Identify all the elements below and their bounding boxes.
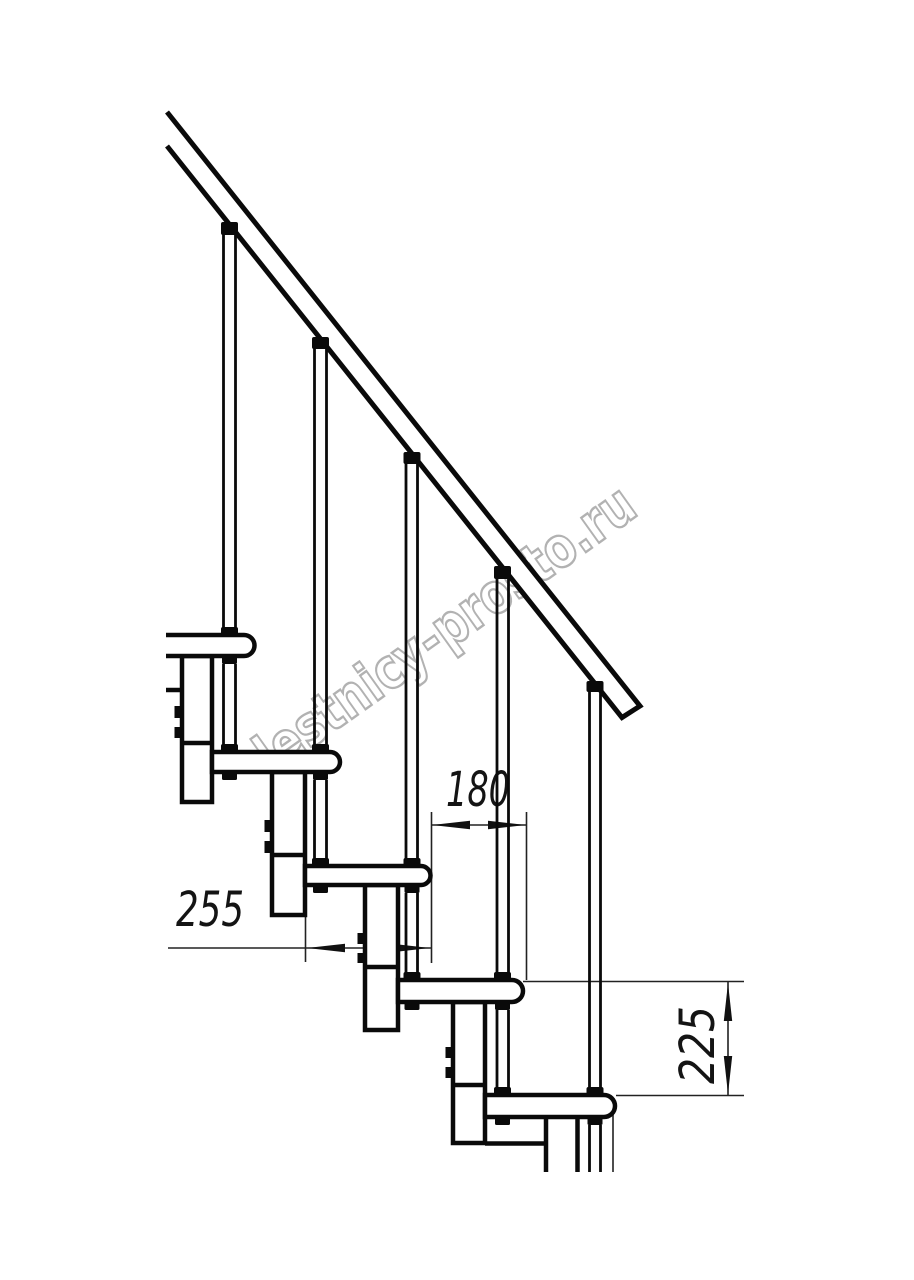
baluster-4 <box>497 577 509 1089</box>
clamp-tab <box>446 1067 454 1078</box>
arrowhead-left-icon <box>307 944 345 952</box>
baluster-2 <box>315 348 327 860</box>
tread-2 <box>212 752 340 772</box>
tread-cap <box>221 627 238 636</box>
under-tread-nut <box>588 1116 603 1125</box>
step-rise-label: 225 <box>670 1006 726 1084</box>
step-run-label: 180 <box>446 762 510 818</box>
tread-cap <box>494 1087 511 1096</box>
rail-cap <box>221 222 238 235</box>
under-tread-nut <box>405 884 420 893</box>
drawing-svg: lestnicy-prosto.ru 255 180 225 <box>0 0 914 1280</box>
rail-cap <box>494 566 511 579</box>
clamp-tab <box>358 933 366 944</box>
tread-cap <box>404 972 421 981</box>
spine-module <box>182 656 212 802</box>
staircase-technical-drawing: lestnicy-prosto.ru 255 180 225 <box>0 0 914 1280</box>
rail-cap <box>312 337 329 349</box>
clamp-tab <box>175 727 183 738</box>
rail-cap <box>587 681 604 692</box>
baluster-1 <box>224 234 236 746</box>
balusters <box>224 234 601 1172</box>
clamp-tab <box>265 841 273 853</box>
arrowhead-left-icon <box>432 821 470 829</box>
under-tread-nut <box>495 1001 510 1010</box>
tread-3 <box>305 866 431 885</box>
tread-cap <box>587 1087 604 1096</box>
spine-module <box>453 1002 485 1143</box>
tread-cap <box>221 744 238 753</box>
under-tread-nut <box>313 884 328 893</box>
tread-cap <box>312 858 329 867</box>
under-tread-nut <box>405 1001 420 1010</box>
baluster-3 <box>406 462 418 974</box>
tread-1 <box>166 635 255 656</box>
spine-module <box>365 885 398 1030</box>
under-tread-nut <box>313 771 328 780</box>
tread-4 <box>398 980 523 1002</box>
under-tread-nut <box>495 1116 510 1125</box>
tread-depth-label: 255 <box>176 882 244 938</box>
rail-cap <box>404 452 421 464</box>
clamp-tab <box>175 706 183 718</box>
tread-cap <box>494 972 511 981</box>
clamp-tab <box>265 820 273 832</box>
under-tread-nut <box>222 771 237 780</box>
clamp-tab <box>446 1047 454 1058</box>
under-tread-nut <box>222 655 237 664</box>
tread-cap <box>404 858 421 867</box>
spine-module <box>272 772 305 915</box>
tread-cap <box>312 744 329 753</box>
tread-5 <box>485 1095 615 1117</box>
arrowhead-right-icon <box>488 821 526 829</box>
watermark: lestnicy-prosto.ru <box>242 472 648 787</box>
watermark-text: lestnicy-prosto.ru <box>242 472 648 787</box>
clamp-tab <box>358 953 366 963</box>
